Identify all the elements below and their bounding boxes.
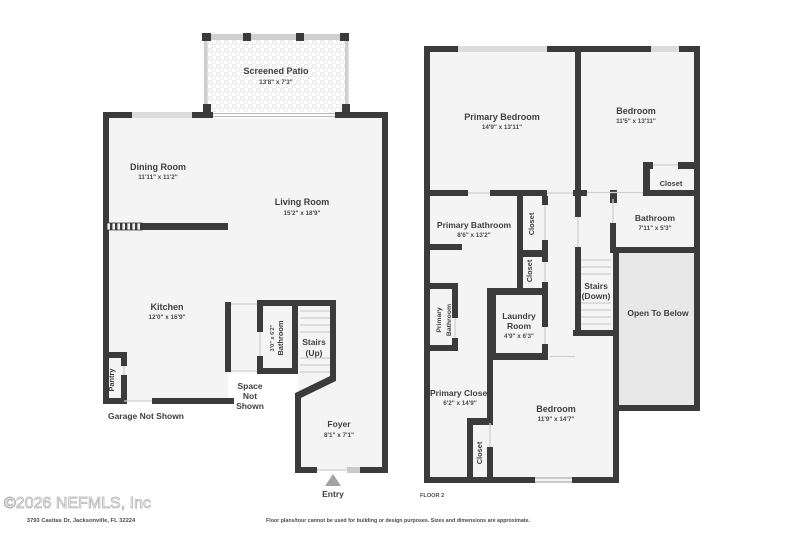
primary-bathroom-dims: 8'6" x 13'2" [457, 232, 490, 239]
bedroom-top-label: Bedroom [616, 106, 656, 116]
laundry-label-line1: Laundry [502, 311, 536, 321]
patio-label: Screened Patio [243, 66, 309, 76]
dining-room-label: Dining Room [130, 162, 186, 172]
bathroom1-dims: 3'0" x 6'2" [270, 324, 276, 351]
garage-not-shown-label: Garage Not Shown [108, 411, 184, 421]
laundry-label-line2: Room [507, 321, 532, 331]
kitchen-counter-hatch [106, 223, 142, 230]
footer-copyright: ©2026 NEFMLS, Inc [4, 495, 151, 512]
primary-bathroom-small-line2: Bathroom [446, 304, 453, 336]
bathroom2-label: Bathroom [635, 213, 676, 223]
floor1-main-area [106, 115, 385, 373]
primary-bathroom-small-line1: Primary [436, 307, 443, 333]
living-room-label: Living Room [275, 197, 330, 207]
primary-bedroom-dims: 14'9" x 13'11" [482, 124, 522, 131]
laundry-dims: 4'9" x 6'3" [504, 333, 534, 340]
bedroom-bottom-dims: 11'9" x 14'7" [538, 416, 575, 423]
closet-lower-label: Closet [525, 259, 534, 282]
floorplan-page: Screened Patio 13'8" x 7'3" Dining Room … [0, 0, 800, 533]
closet-upper-label: Closet [527, 212, 536, 235]
foyer-dims: 8'1" x 7'1" [324, 432, 354, 439]
footer: ©2026 NEFMLS, Inc 3793 Casitas Dr, Jacks… [4, 495, 531, 524]
stairs-up-direction: (Up) [306, 348, 323, 358]
bedroom-bottom-label: Bedroom [536, 404, 576, 414]
stairs-down-direction: (Down) [582, 291, 611, 301]
floorplan-drawing: Screened Patio 13'8" x 7'3" Dining Room … [0, 0, 800, 533]
bathroom1-label: Bathroom [276, 320, 285, 355]
pantry-label: Pantry [107, 368, 116, 392]
floor2-lower-area [427, 408, 613, 480]
entry-label: Entry [322, 489, 344, 499]
bedroom-top-dims: 11'5" x 13'11" [616, 118, 656, 125]
dining-room-dims: 11'11" x 11'2" [138, 174, 177, 181]
living-room-dims: 15'2" x 18'9" [284, 210, 321, 217]
foyer-label: Foyer [327, 419, 351, 429]
open-to-below-label: Open To Below [627, 308, 689, 318]
floor1-plan: Screened Patio 13'8" x 7'3" Dining Room … [103, 33, 388, 499]
footer-disclaimer: Floor plans/tour cannot be used for buil… [266, 518, 531, 524]
patio-dims: 13'8" x 7'3" [259, 79, 292, 86]
patio-screen-texture [207, 40, 345, 112]
floor2-plan: Primary Bedroom 14'9" x 13'11" Bedroom 1… [420, 46, 700, 499]
open-to-below-area [616, 253, 697, 405]
closet-top-label: Closet [660, 179, 683, 188]
bathroom2-dims: 7'11" x 5'3" [638, 225, 671, 232]
primary-bedroom-label: Primary Bedroom [464, 112, 540, 122]
closet-bottom-label: Closet [475, 441, 484, 464]
stairs-up-label: Stairs [302, 337, 326, 347]
kitchen-dims: 12'0" x 16'9" [149, 314, 186, 321]
primary-bathroom-label: Primary Bathroom [437, 220, 512, 230]
stairs-down-label: Stairs [584, 281, 608, 291]
primary-closet-dims: 6'2" x 14'9" [443, 400, 476, 407]
entry-door-leaf [347, 467, 360, 473]
space-not-shown-line3: Shown [236, 401, 264, 411]
floor2-caption: FLOOR 2 [420, 493, 444, 499]
space-not-shown-line1: Space [237, 381, 262, 391]
footer-address: 3793 Casitas Dr, Jacksonville, FL 32224 [27, 518, 136, 524]
space-not-shown-line2: Not [243, 391, 257, 401]
entry-arrow-icon [325, 474, 341, 486]
primary-closet-label: Primary Closet [430, 388, 490, 398]
kitchen-label: Kitchen [150, 302, 183, 312]
